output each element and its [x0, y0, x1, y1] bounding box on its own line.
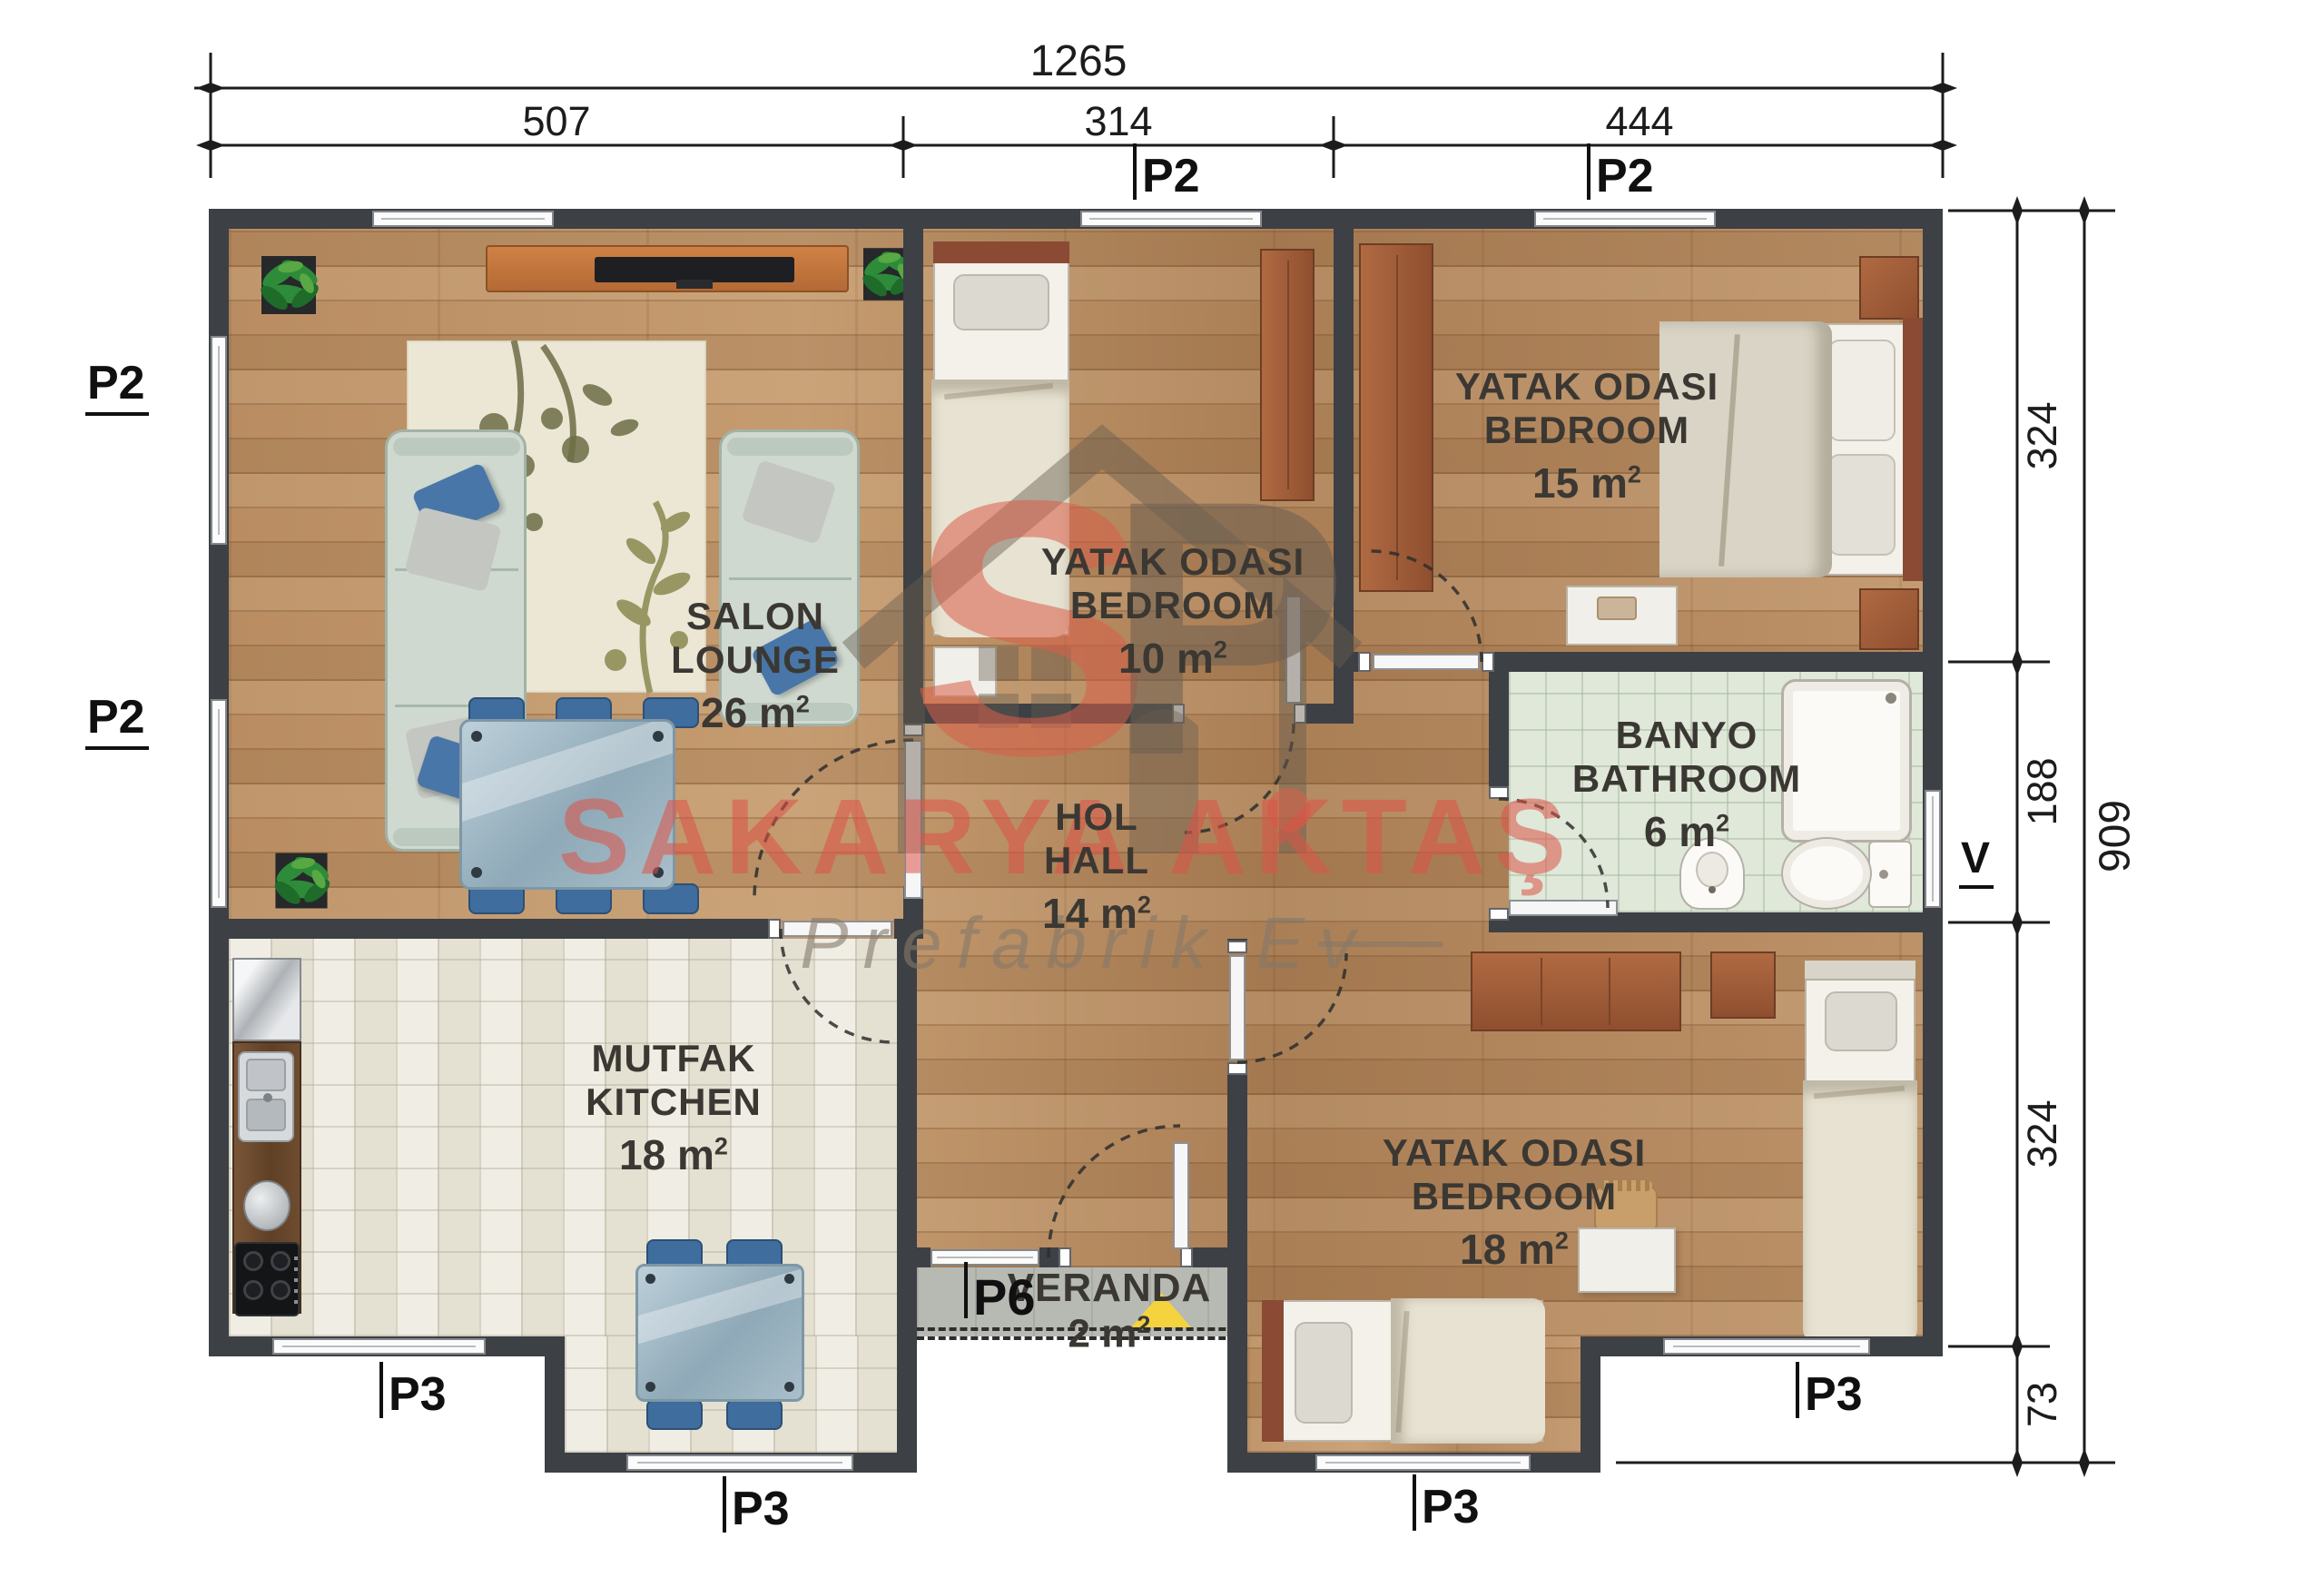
label-p3-bedroom-bump: P3	[1422, 1480, 1480, 1534]
dim-segment: 73	[2019, 1382, 2066, 1427]
room-area: 14 m2	[1042, 890, 1151, 937]
dimension-lines	[194, 53, 2115, 1463]
label-p3-kitchen: P3	[389, 1367, 447, 1422]
room-area: 6 m2	[1572, 808, 1801, 855]
dim-total-height: 909	[2091, 800, 2141, 872]
dim-segment: 444	[1605, 98, 1673, 145]
door-arc-bedroom10	[1185, 724, 1294, 833]
room-name-tr: MUTFAK	[586, 1037, 762, 1080]
door-arc-salon	[754, 740, 913, 899]
room-name: VERANDA	[1008, 1266, 1212, 1311]
label-p2-top-bedroom15: P2	[1596, 149, 1654, 203]
room-area: 18 m2	[586, 1131, 762, 1178]
room-label-bedroom10: YATAK ODASI BEDROOM 10 m2	[1041, 540, 1305, 682]
door-arc-bedroom15	[1371, 551, 1482, 662]
label-p6-veranda: P6	[973, 1267, 1036, 1326]
room-area: 2 m2	[1008, 1311, 1212, 1357]
leader-line	[1413, 1474, 1416, 1531]
room-label-hall: HOL HALL 14 m2	[1042, 795, 1151, 937]
label-p2-left-top: P2	[85, 356, 149, 416]
floor-plan-page: { "dimensions": { "top": { "total": "126…	[0, 0, 2324, 1587]
room-name-tr: BANYO	[1572, 714, 1801, 757]
room-name-en: BEDROOM	[1383, 1175, 1646, 1218]
leader-line	[379, 1362, 383, 1418]
door-arc-bedroom18	[1237, 953, 1346, 1062]
label-p3-kitchen-bump: P3	[732, 1482, 790, 1536]
room-name-tr: YATAK ODASI	[1455, 365, 1718, 409]
label-p2-left-bottom: P2	[85, 690, 149, 750]
room-area: 15 m2	[1455, 459, 1718, 507]
room-label-bedroom15: YATAK ODASI BEDROOM 15 m2	[1455, 365, 1718, 507]
room-label-salon: SALON LOUNGE 26 m2	[671, 595, 840, 736]
dim-segment: 188	[2019, 757, 2066, 825]
label-p3-bedroom-right: P3	[1805, 1367, 1863, 1422]
leader-line	[1587, 143, 1590, 200]
door-arc-veranda	[1049, 1126, 1180, 1257]
room-name-en: BEDROOM	[1455, 409, 1718, 452]
leader-line	[964, 1262, 968, 1318]
label-v-bathroom: V	[1959, 833, 1994, 889]
room-name-en: LOUNGE	[671, 638, 840, 682]
door-arc-kitchen	[781, 929, 894, 1042]
room-name-tr: SALON	[671, 595, 840, 638]
dim-segment: 314	[1084, 98, 1152, 145]
room-name-tr: YATAK ODASI	[1383, 1131, 1646, 1175]
room-area: 18 m2	[1383, 1226, 1646, 1273]
room-name-tr: YATAK ODASI	[1041, 540, 1305, 584]
dim-segment: 507	[522, 98, 590, 145]
room-label-kitchen: MUTFAK KITCHEN 18 m2	[586, 1037, 762, 1178]
room-area: 26 m2	[671, 689, 840, 736]
room-name-en: BATHROOM	[1572, 757, 1801, 801]
leader-line	[1133, 143, 1137, 200]
room-label-bedroom18: YATAK ODASI BEDROOM 18 m2	[1383, 1131, 1646, 1273]
dim-total-width: 1265	[1030, 36, 1128, 86]
label-p2-top-bedroom10: P2	[1142, 149, 1200, 203]
dim-segment: 324	[2019, 1099, 2066, 1168]
room-area: 10 m2	[1041, 635, 1305, 682]
room-name-en: HALL	[1042, 839, 1151, 882]
room-label-bathroom: BANYO BATHROOM 6 m2	[1572, 714, 1801, 855]
dim-segment: 324	[2019, 401, 2066, 469]
room-label-veranda: VERANDA 2 m2	[1008, 1266, 1212, 1357]
room-name-en: KITCHEN	[586, 1080, 762, 1124]
room-name-tr: HOL	[1042, 795, 1151, 839]
leader-line	[723, 1476, 726, 1533]
room-name-en: BEDROOM	[1041, 584, 1305, 627]
leader-line	[1796, 1362, 1799, 1418]
